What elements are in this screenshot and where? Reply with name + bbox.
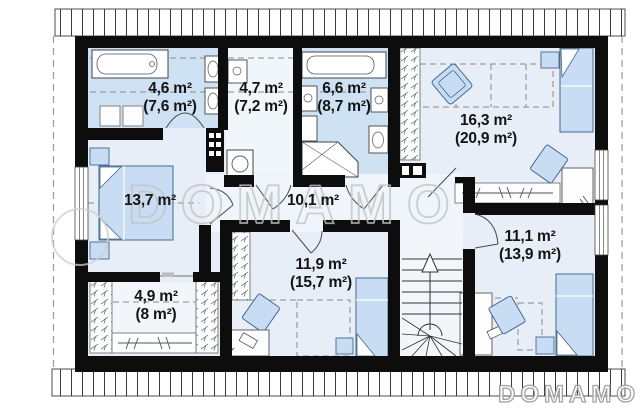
room-area: 16,3 m²	[455, 112, 517, 130]
room-label-bedroom-bottom: 11,9 m² (15,7 m²)	[290, 256, 352, 291]
room-area: 11,9 m²	[290, 256, 352, 274]
room-area: 13,7 m²	[124, 192, 176, 210]
room-area-total: (13,9 m²)	[499, 246, 561, 264]
floor-plan: 4,6 m² (7,6 m²) 4,7 m² (7,2 m²) 6,6 m² (…	[0, 0, 640, 413]
room-label-hallway: 10,1 m²	[287, 192, 339, 210]
bathtub-icon	[302, 52, 386, 78]
room-area-total: (7,2 m²)	[234, 98, 288, 116]
room-label-bathroom-top-mid: 6,6 m² (8,7 m²)	[317, 80, 371, 115]
washbasin-icon	[371, 88, 388, 112]
room-label-laundry-room: 4,7 m² (7,2 m²)	[234, 80, 288, 115]
room-area: 4,6 m²	[143, 80, 197, 98]
room-area-total: (7,6 m²)	[143, 98, 197, 116]
room-area: 4,7 m²	[234, 80, 288, 98]
window-icon	[595, 205, 608, 255]
room-area: 11,1 m²	[499, 228, 561, 246]
room-area-total: (8 m²)	[134, 306, 178, 324]
room-label-bathroom-top-left: 4,6 m² (7,6 m²)	[143, 80, 197, 115]
room-area: 4,9 m²	[134, 288, 178, 306]
room-area-total: (20,9 m²)	[455, 130, 517, 148]
room-area-total: (8,7 m²)	[317, 98, 371, 116]
room-label-bedroom-right: 11,1 m² (13,9 m²)	[499, 228, 561, 263]
bathtub-icon	[92, 50, 168, 78]
room-area: 10,1 m²	[287, 192, 339, 210]
room-label-bedroom-left: 13,7 m²	[124, 192, 176, 210]
window-icon	[75, 167, 88, 240]
watermark-small: DOMAMO	[498, 381, 640, 409]
room-area-total: (15,7 m²)	[290, 274, 352, 292]
roof-overhang-top	[55, 9, 625, 36]
toilet-icon	[369, 126, 388, 153]
room-label-bedroom-top-right: 16,3 m² (20,9 m²)	[455, 112, 517, 147]
window-icon	[595, 150, 608, 200]
chimney-icon	[206, 128, 224, 172]
room-area: 6,6 m²	[317, 80, 371, 98]
room-label-wardrobe-room: 4,9 m² (8 m²)	[134, 288, 178, 323]
